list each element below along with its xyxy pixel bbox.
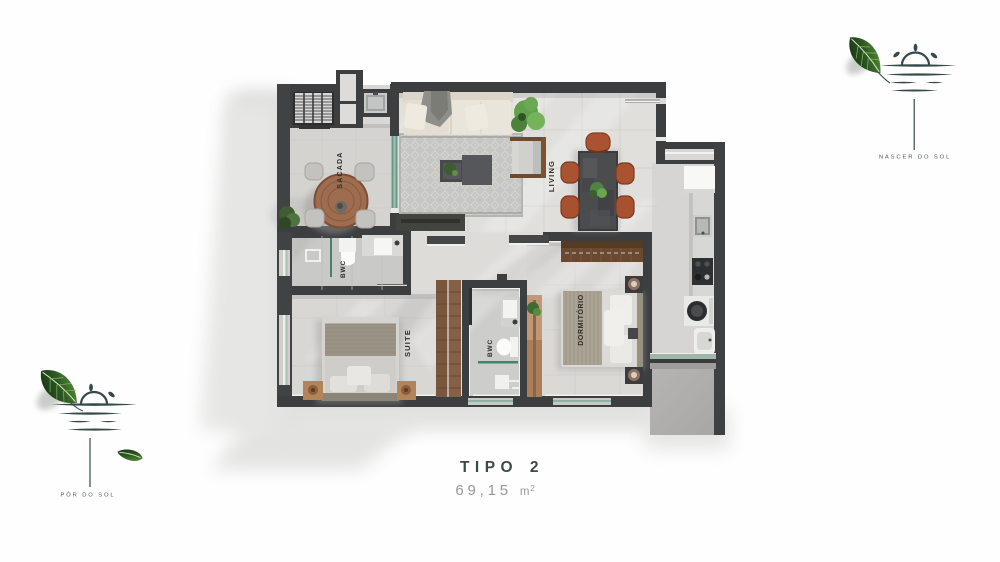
- svg-text:BWC: BWC: [340, 260, 347, 278]
- svg-text:SACADA: SACADA: [337, 151, 344, 188]
- svg-text:SUITE: SUITE: [403, 329, 412, 357]
- svg-text:DORMITÓRIO: DORMITÓRIO: [576, 294, 585, 346]
- svg-text:PÔR DO SOL: PÔR DO SOL: [60, 492, 115, 499]
- svg-text:NASCER DO SOL: NASCER DO SOL: [879, 155, 951, 161]
- svg-text:LIVING: LIVING: [547, 160, 556, 192]
- svg-text:TIPO 2: TIPO 2: [460, 459, 544, 476]
- svg-text:BWC: BWC: [487, 339, 494, 357]
